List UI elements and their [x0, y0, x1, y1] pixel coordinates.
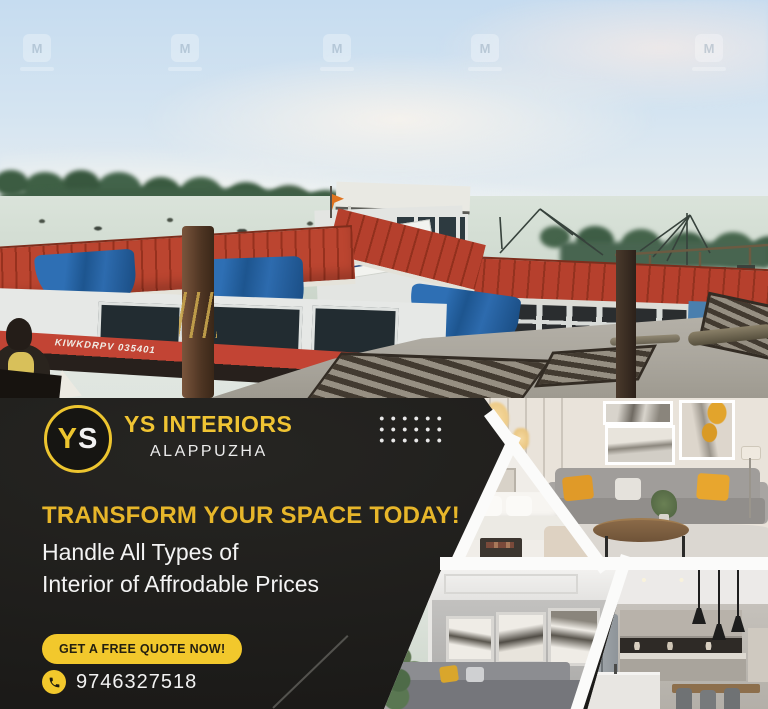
phone-icon	[42, 670, 66, 694]
pendant-cord	[718, 570, 720, 624]
ad-subline-1: Handle All Types of	[42, 539, 238, 566]
backwater-boats-photo: M M M M M	[0, 0, 768, 398]
watermark-logo-icon: M	[471, 34, 499, 62]
floor-lamp-shade	[741, 446, 761, 460]
yellow-pillow	[439, 665, 459, 683]
phone-contact[interactable]: 9746327518	[42, 670, 197, 694]
free-quote-button[interactable]: GET A FREE QUOTE NOW!	[42, 634, 242, 664]
books	[486, 542, 514, 548]
wall-art	[605, 425, 675, 465]
watermark: M	[22, 34, 52, 78]
gray-pillow	[466, 667, 484, 682]
wall-art	[446, 616, 494, 662]
phone-number: 9746327518	[76, 671, 197, 694]
mooring-post	[182, 226, 214, 398]
wall-art	[496, 612, 546, 664]
watermark-logo-icon: M	[323, 34, 351, 62]
logo-letter-y: Y	[58, 423, 78, 456]
interiors-ad-panel: YS YS INTERIORS ALAPPUZHA TRANSFORM YOUR…	[0, 398, 768, 709]
brand-logo: YS	[44, 405, 112, 473]
flag-pole	[330, 186, 332, 218]
brand-name: YS INTERIORS	[124, 411, 292, 438]
watermark: M	[694, 34, 724, 78]
dots-grid-decoration	[376, 413, 442, 444]
orange-pillow	[562, 474, 594, 501]
watermark: M	[470, 34, 500, 78]
ceiling-cove	[444, 574, 578, 594]
wooden-gangplank	[304, 352, 551, 398]
dark-post	[616, 250, 636, 398]
ad-headline: TRANSFORM YOUR SPACE TODAY!	[42, 502, 460, 530]
orange-pillow	[696, 473, 730, 501]
cushion	[506, 496, 532, 516]
watermark-text-line	[20, 67, 54, 71]
faucet	[614, 664, 617, 674]
watermark: M	[170, 34, 200, 78]
watermark-logo-icon: M	[695, 34, 723, 62]
watermark-text-line	[168, 67, 202, 71]
houseplant	[384, 668, 414, 709]
floor-lamp-pole	[749, 458, 751, 518]
diagonal-line-decoration	[272, 635, 348, 709]
pantry-shelf	[748, 628, 768, 682]
pendant-cord	[698, 570, 700, 608]
wall-art	[603, 401, 673, 425]
watermark-logo-icon: M	[23, 34, 51, 62]
watermark: M	[322, 34, 352, 78]
yellow-rope	[179, 292, 217, 338]
watermark-text-line	[692, 67, 726, 71]
pendant-cord	[737, 570, 739, 616]
sectional-seat	[394, 680, 582, 709]
brand-location: ALAPPUZHA	[150, 443, 268, 461]
ad-poster: M M M M M	[0, 0, 768, 709]
wall-art-abstract	[679, 400, 735, 460]
white-pillow	[615, 478, 641, 500]
ad-subline-2: Interior of Affrodable Prices	[42, 571, 319, 598]
dining-chair	[700, 690, 716, 709]
dining-chair	[676, 688, 692, 709]
person-head	[6, 318, 32, 350]
logo-letter-s: S	[78, 423, 98, 456]
watermark-text-line	[468, 67, 502, 71]
counter-items	[626, 642, 736, 650]
watermark-text-line	[320, 67, 354, 71]
kitchen-island	[584, 672, 660, 709]
boat-registration-text: KIWKDRPV 035401	[54, 337, 156, 356]
dining-chair	[724, 688, 740, 709]
watermark-logo-icon: M	[171, 34, 199, 62]
